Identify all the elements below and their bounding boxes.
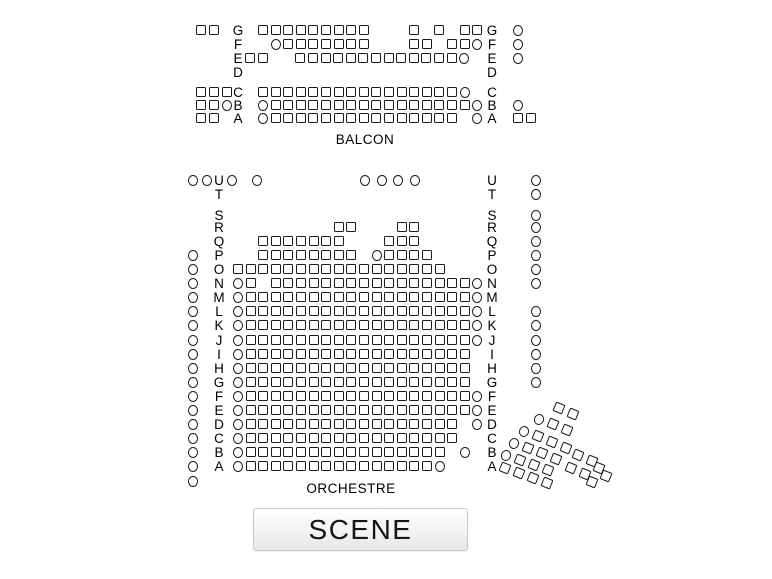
seat-orchestra-A-5[interactable]	[271, 461, 281, 471]
seat-balcony-G-11[interactable]	[359, 25, 369, 35]
seat-orchestra-A-3[interactable]	[246, 461, 256, 471]
seat-balcony-G-12[interactable]	[409, 25, 419, 35]
seat-side-block-24[interactable]	[564, 461, 577, 474]
seat-orchestra-B-13[interactable]	[372, 447, 382, 457]
seat-orchestra-O-9[interactable]	[321, 264, 331, 274]
seat-orchestra-P-2[interactable]	[258, 250, 268, 260]
seat-orchestra-B-1[interactable]	[188, 447, 198, 458]
seat-balcony-G-4[interactable]	[271, 25, 281, 35]
seat-orchestra-N-20[interactable]	[472, 278, 482, 289]
seat-orchestra-K-12[interactable]	[359, 320, 369, 330]
seat-balcony-C-15[interactable]	[397, 87, 407, 97]
seat-balcony-E-1[interactable]	[245, 53, 255, 63]
seat-balcony-F-9[interactable]	[409, 39, 419, 49]
seat-orchestra-M-3[interactable]	[246, 292, 256, 302]
seat-balcony-E-6[interactable]	[333, 53, 343, 63]
seat-orchestra-B-16[interactable]	[409, 447, 419, 457]
seat-balcony-E-13[interactable]	[421, 53, 431, 63]
seat-orchestra-E-16[interactable]	[409, 405, 419, 415]
seat-orchestra-U-6[interactable]	[377, 175, 387, 186]
seat-orchestra-Q-11[interactable]	[531, 236, 541, 247]
seat-orchestra-I-10[interactable]	[334, 349, 344, 359]
seat-orchestra-N-18[interactable]	[447, 278, 457, 288]
seat-orchestra-F-6[interactable]	[283, 391, 293, 401]
seat-orchestra-N-5[interactable]	[283, 278, 293, 288]
seat-orchestra-O-4[interactable]	[258, 264, 268, 274]
seat-balcony-B-13[interactable]	[371, 100, 381, 110]
seat-orchestra-R-1[interactable]	[334, 222, 344, 232]
seat-orchestra-L-9[interactable]	[321, 306, 331, 316]
seat-orchestra-E-14[interactable]	[384, 405, 394, 415]
seat-orchestra-C-13[interactable]	[372, 433, 382, 443]
seat-balcony-A-12[interactable]	[371, 113, 381, 123]
seat-orchestra-O-13[interactable]	[372, 264, 382, 274]
seat-balcony-B-16[interactable]	[409, 100, 419, 110]
seat-orchestra-Q-1[interactable]	[258, 236, 268, 246]
seat-orchestra-I-9[interactable]	[321, 349, 331, 359]
seat-orchestra-E-11[interactable]	[346, 405, 356, 415]
seat-orchestra-C-3[interactable]	[246, 433, 256, 443]
seat-orchestra-H-11[interactable]	[346, 363, 356, 373]
seat-orchestra-B-7[interactable]	[296, 447, 306, 457]
seat-orchestra-L-4[interactable]	[258, 306, 268, 316]
seat-orchestra-M-4[interactable]	[258, 292, 268, 302]
seat-orchestra-B-2[interactable]	[233, 447, 243, 458]
seat-balcony-F-4[interactable]	[308, 39, 318, 49]
seat-orchestra-H-7[interactable]	[296, 363, 306, 373]
seat-side-block-1[interactable]	[552, 401, 565, 414]
seat-orchestra-E-18[interactable]	[435, 405, 445, 415]
seat-orchestra-O-19[interactable]	[531, 264, 541, 275]
seat-orchestra-C-9[interactable]	[321, 433, 331, 443]
seat-orchestra-Q-8[interactable]	[384, 236, 394, 246]
seat-orchestra-D-9[interactable]	[321, 419, 331, 429]
seat-orchestra-P-12[interactable]	[397, 250, 407, 260]
seat-orchestra-M-1[interactable]	[188, 292, 198, 303]
seat-orchestra-M-20[interactable]	[460, 292, 470, 302]
seat-orchestra-A-9[interactable]	[321, 461, 331, 471]
seat-orchestra-D-8[interactable]	[309, 419, 319, 429]
seat-balcony-B-4[interactable]	[258, 100, 268, 111]
seat-orchestra-P-6[interactable]	[309, 250, 319, 260]
seat-orchestra-H-14[interactable]	[384, 363, 394, 373]
seat-orchestra-H-21[interactable]	[531, 363, 541, 374]
seat-orchestra-N-11[interactable]	[359, 278, 369, 288]
seat-orchestra-I-8[interactable]	[309, 349, 319, 359]
seat-orchestra-Q-3[interactable]	[283, 236, 293, 246]
seat-orchestra-O-5[interactable]	[271, 264, 281, 274]
seat-orchestra-H-15[interactable]	[397, 363, 407, 373]
seat-orchestra-N-15[interactable]	[409, 278, 419, 288]
seat-orchestra-P-13[interactable]	[409, 250, 419, 260]
seat-orchestra-E-2[interactable]	[233, 405, 243, 416]
seat-orchestra-P-15[interactable]	[531, 250, 541, 261]
seat-orchestra-E-9[interactable]	[321, 405, 331, 415]
seat-orchestra-G-9[interactable]	[321, 377, 331, 387]
seat-balcony-F-5[interactable]	[321, 39, 331, 49]
seat-balcony-F-8[interactable]	[359, 39, 369, 49]
seat-balcony-G-5[interactable]	[283, 25, 293, 35]
seat-side-block-20[interactable]	[526, 471, 539, 484]
seat-orchestra-H-13[interactable]	[372, 363, 382, 373]
seat-orchestra-I-21[interactable]	[531, 349, 541, 360]
seat-balcony-G-10[interactable]	[346, 25, 356, 35]
seat-orchestra-B-5[interactable]	[271, 447, 281, 457]
seat-orchestra-I-5[interactable]	[271, 349, 281, 359]
seat-balcony-C-18[interactable]	[434, 87, 444, 97]
seat-orchestra-J-10[interactable]	[334, 335, 344, 345]
seat-orchestra-K-18[interactable]	[435, 320, 445, 330]
seat-orchestra-F-4[interactable]	[258, 391, 268, 401]
seat-orchestra-M-11[interactable]	[346, 292, 356, 302]
seat-balcony-E-12[interactable]	[409, 53, 419, 63]
seat-orchestra-J-9[interactable]	[321, 335, 331, 345]
seat-balcony-C-12[interactable]	[359, 87, 369, 97]
seat-side-block-28[interactable]	[599, 469, 612, 482]
seat-orchestra-F-3[interactable]	[246, 391, 256, 401]
seat-side-block-15[interactable]	[513, 453, 526, 466]
seat-orchestra-K-13[interactable]	[372, 320, 382, 330]
seat-orchestra-M-19[interactable]	[447, 292, 457, 302]
seat-orchestra-C-12[interactable]	[359, 433, 369, 443]
seat-balcony-C-14[interactable]	[384, 87, 394, 97]
seat-orchestra-L-22[interactable]	[531, 306, 541, 317]
seat-orchestra-P-10[interactable]	[372, 250, 382, 261]
seat-orchestra-F-10[interactable]	[334, 391, 344, 401]
seat-orchestra-A-6[interactable]	[283, 461, 293, 471]
seat-balcony-B-5[interactable]	[271, 100, 281, 110]
seat-orchestra-K-21[interactable]	[472, 320, 482, 331]
seat-orchestra-U-5[interactable]	[360, 175, 370, 186]
seat-orchestra-M-2[interactable]	[233, 292, 243, 303]
seat-orchestra-G-4[interactable]	[258, 377, 268, 387]
seat-orchestra-N-3[interactable]	[246, 278, 256, 288]
seat-orchestra-H-10[interactable]	[334, 363, 344, 373]
seat-side-block-3[interactable]	[532, 413, 545, 427]
seat-side-block-17[interactable]	[541, 463, 554, 476]
seat-orchestra-T-1[interactable]	[531, 189, 541, 200]
seat-orchestra-O-18[interactable]	[435, 264, 445, 274]
seat-balcony-A-4[interactable]	[271, 113, 281, 123]
seat-orchestra-H-5[interactable]	[271, 363, 281, 373]
seat-orchestra-G-11[interactable]	[346, 377, 356, 387]
seat-orchestra-N-9[interactable]	[334, 278, 344, 288]
seat-orchestra-J-1[interactable]	[188, 335, 198, 346]
seat-orchestra-K-20[interactable]	[460, 320, 470, 330]
seat-side-block-6[interactable]	[517, 425, 530, 439]
seat-orchestra-J-17[interactable]	[422, 335, 432, 345]
seat-orchestra-M-10[interactable]	[334, 292, 344, 302]
seat-orchestra-A-17[interactable]	[422, 461, 432, 471]
seat-orchestra-F-18[interactable]	[435, 391, 445, 401]
seat-orchestra-R-4[interactable]	[409, 222, 419, 232]
seat-orchestra-G-7[interactable]	[296, 377, 306, 387]
seat-orchestra-B-3[interactable]	[246, 447, 256, 457]
seat-balcony-C-4[interactable]	[258, 87, 268, 97]
seat-orchestra-L-21[interactable]	[472, 306, 482, 317]
seat-orchestra-B-15[interactable]	[397, 447, 407, 457]
seat-orchestra-G-6[interactable]	[283, 377, 293, 387]
seat-side-block-2[interactable]	[566, 407, 579, 420]
seat-orchestra-J-18[interactable]	[435, 335, 445, 345]
seat-orchestra-A-14[interactable]	[384, 461, 394, 471]
seat-orchestra-C-4[interactable]	[258, 433, 268, 443]
seat-orchestra-L-15[interactable]	[397, 306, 407, 316]
seat-orchestra-I-19[interactable]	[447, 349, 457, 359]
seat-orchestra-M-13[interactable]	[372, 292, 382, 302]
seat-balcony-A-5[interactable]	[283, 113, 293, 123]
seat-balcony-E-16[interactable]	[459, 53, 469, 64]
seat-orchestra-K-16[interactable]	[409, 320, 419, 330]
seat-orchestra-A-16[interactable]	[409, 461, 419, 471]
seat-orchestra-F-15[interactable]	[397, 391, 407, 401]
seat-orchestra-F-20[interactable]	[460, 391, 470, 401]
seat-orchestra-A-18[interactable]	[435, 461, 445, 472]
seat-orchestra-L-12[interactable]	[359, 306, 369, 316]
seat-orchestra-K-6[interactable]	[283, 320, 293, 330]
seat-orchestra-I-11[interactable]	[346, 349, 356, 359]
seat-side-block-16[interactable]	[527, 458, 540, 471]
seat-orchestra-K-4[interactable]	[258, 320, 268, 330]
seat-orchestra-M-14[interactable]	[384, 292, 394, 302]
seat-orchestra-R-5[interactable]	[531, 222, 541, 233]
seat-orchestra-F-21[interactable]	[472, 391, 482, 402]
seat-orchestra-L-20[interactable]	[460, 306, 470, 316]
seat-orchestra-E-4[interactable]	[258, 405, 268, 415]
seat-orchestra-D-5[interactable]	[271, 419, 281, 429]
seat-orchestra-I-6[interactable]	[283, 349, 293, 359]
seat-orchestra-G-20[interactable]	[460, 377, 470, 387]
seat-orchestra-L-6[interactable]	[283, 306, 293, 316]
seat-balcony-A-2[interactable]	[209, 113, 219, 123]
seat-orchestra-B-4[interactable]	[258, 447, 268, 457]
seat-orchestra-L-8[interactable]	[309, 306, 319, 316]
seat-balcony-C-1[interactable]	[196, 87, 206, 97]
seat-orchestra-G-5[interactable]	[271, 377, 281, 387]
seat-orchestra-H-19[interactable]	[447, 363, 457, 373]
seat-orchestra-J-4[interactable]	[258, 335, 268, 345]
seat-balcony-A-21[interactable]	[526, 113, 536, 123]
seat-orchestra-B-17[interactable]	[422, 447, 432, 457]
seat-orchestra-D-3[interactable]	[246, 419, 256, 429]
seat-orchestra-P-14[interactable]	[422, 250, 432, 260]
seat-balcony-B-18[interactable]	[434, 100, 444, 110]
seat-side-block-8[interactable]	[545, 435, 558, 448]
seat-orchestra-D-7[interactable]	[296, 419, 306, 429]
seat-orchestra-N-19[interactable]	[460, 278, 470, 288]
seat-orchestra-K-14[interactable]	[384, 320, 394, 330]
seat-orchestra-F-11[interactable]	[346, 391, 356, 401]
seat-orchestra-K-7[interactable]	[296, 320, 306, 330]
seat-balcony-E-3[interactable]	[295, 53, 305, 63]
seat-balcony-B-12[interactable]	[359, 100, 369, 110]
seat-orchestra-L-17[interactable]	[422, 306, 432, 316]
seat-orchestra-L-11[interactable]	[346, 306, 356, 316]
seat-orchestra-N-8[interactable]	[321, 278, 331, 288]
seat-orchestra-L-2[interactable]	[233, 306, 243, 317]
seat-orchestra-C-6[interactable]	[283, 433, 293, 443]
seat-orchestra-G-18[interactable]	[435, 377, 445, 387]
seat-orchestra-C-15[interactable]	[397, 433, 407, 443]
seat-orchestra-F-8[interactable]	[309, 391, 319, 401]
seat-balcony-G-2[interactable]	[209, 25, 219, 35]
seat-orchestra-G-21[interactable]	[531, 377, 541, 388]
seat-orchestra-A-7[interactable]	[296, 461, 306, 471]
seat-orchestra-C-18[interactable]	[435, 433, 445, 443]
seat-balcony-B-8[interactable]	[308, 100, 318, 110]
seat-balcony-C-20[interactable]	[460, 87, 470, 98]
seat-balcony-F-10[interactable]	[422, 39, 432, 49]
seat-orchestra-H-16[interactable]	[409, 363, 419, 373]
seat-orchestra-E-17[interactable]	[422, 405, 432, 415]
seat-balcony-A-10[interactable]	[346, 113, 356, 123]
seat-orchestra-P-7[interactable]	[321, 250, 331, 260]
seat-balcony-E-8[interactable]	[358, 53, 368, 63]
seat-orchestra-H-9[interactable]	[321, 363, 331, 373]
seat-orchestra-B-11[interactable]	[346, 447, 356, 457]
seat-orchestra-D-4[interactable]	[258, 419, 268, 429]
seat-orchestra-A-12[interactable]	[359, 461, 369, 471]
seat-side-block-13[interactable]	[549, 452, 562, 465]
seat-orchestra-E-15[interactable]	[397, 405, 407, 415]
seat-orchestra-D-6[interactable]	[283, 419, 293, 429]
seat-orchestra-D-12[interactable]	[359, 419, 369, 429]
seat-orchestra-U-8[interactable]	[410, 175, 420, 186]
seat-orchestra-I-1[interactable]	[188, 349, 198, 360]
seat-orchestra-P-11[interactable]	[384, 250, 394, 260]
seat-orchestra-D-2[interactable]	[233, 419, 243, 430]
seat-orchestra-J-14[interactable]	[384, 335, 394, 345]
seat-balcony-A-19[interactable]	[472, 113, 482, 124]
seat-orchestra-C-8[interactable]	[309, 433, 319, 443]
seat-orchestra-G-1[interactable]	[188, 377, 198, 388]
seat-orchestra-M-16[interactable]	[409, 292, 419, 302]
seat-orchestra-E-6[interactable]	[283, 405, 293, 415]
seat-orchestra-L-5[interactable]	[271, 306, 281, 316]
seat-orchestra-I-13[interactable]	[372, 349, 382, 359]
seat-balcony-A-3[interactable]	[258, 113, 268, 124]
seat-orchestra-L-13[interactable]	[372, 306, 382, 316]
seat-orchestra-E-7[interactable]	[296, 405, 306, 415]
seat-balcony-C-16[interactable]	[409, 87, 419, 97]
seat-side-block-9[interactable]	[559, 441, 572, 454]
seat-orchestra-Q-5[interactable]	[309, 236, 319, 246]
seat-orchestra-U-3[interactable]	[227, 175, 237, 186]
seat-orchestra-N-2[interactable]	[233, 278, 243, 289]
seat-orchestra-H-8[interactable]	[309, 363, 319, 373]
seat-balcony-E-11[interactable]	[396, 53, 406, 63]
seat-side-block-22[interactable]	[571, 448, 584, 461]
seat-orchestra-F-5[interactable]	[271, 391, 281, 401]
seat-balcony-G-13[interactable]	[434, 25, 444, 35]
seat-orchestra-D-20[interactable]	[472, 419, 482, 430]
seat-orchestra-N-1[interactable]	[188, 278, 198, 289]
seat-orchestra-M-9[interactable]	[321, 292, 331, 302]
seat-balcony-B-7[interactable]	[296, 100, 306, 110]
seat-balcony-F-12[interactable]	[460, 39, 470, 49]
seat-balcony-G-6[interactable]	[296, 25, 306, 35]
seat-orchestra-M-18[interactable]	[435, 292, 445, 302]
seat-side-block-10[interactable]	[507, 437, 520, 451]
seat-orchestra-K-11[interactable]	[346, 320, 356, 330]
seat-orchestra-C-19[interactable]	[447, 433, 457, 443]
seat-side-block-5[interactable]	[560, 423, 573, 436]
seat-orchestra-F-17[interactable]	[422, 391, 432, 401]
seat-orchestra-H-6[interactable]	[283, 363, 293, 373]
seat-orchestra-C-1[interactable]	[188, 433, 198, 444]
seat-orchestra-I-4[interactable]	[258, 349, 268, 359]
seat-orchestra-F-13[interactable]	[372, 391, 382, 401]
seat-orchestra-P-5[interactable]	[296, 250, 306, 260]
seat-orchestra-G-17[interactable]	[422, 377, 432, 387]
seat-balcony-F-2[interactable]	[283, 39, 293, 49]
seat-orchestra-I-7[interactable]	[296, 349, 306, 359]
seat-orchestra-A-13[interactable]	[372, 461, 382, 471]
seat-orchestra-J-15[interactable]	[397, 335, 407, 345]
seat-side-block-21[interactable]	[540, 476, 553, 489]
seat-side-block-4[interactable]	[546, 417, 559, 430]
seat-orchestra-M-12[interactable]	[359, 292, 369, 302]
seat-orchestra-F-7[interactable]	[296, 391, 306, 401]
seat-orchestra-J-19[interactable]	[447, 335, 457, 345]
seat-orchestra-J-22[interactable]	[531, 335, 541, 346]
seat-side-block-18[interactable]	[498, 461, 511, 474]
seat-balcony-C-9[interactable]	[321, 87, 331, 97]
seat-orchestra-J-7[interactable]	[296, 335, 306, 345]
seat-orchestra-B-19[interactable]	[460, 447, 470, 458]
seat-orchestra-N-14[interactable]	[397, 278, 407, 288]
seat-orchestra-E-21[interactable]	[472, 405, 482, 416]
seat-balcony-F-13[interactable]	[472, 39, 482, 50]
seat-balcony-B-9[interactable]	[321, 100, 331, 110]
seat-orchestra-A-1[interactable]	[188, 461, 198, 472]
seat-orchestra-F-9[interactable]	[321, 391, 331, 401]
seat-orchestra-G-10[interactable]	[334, 377, 344, 387]
seat-balcony-A-6[interactable]	[296, 113, 306, 123]
seat-balcony-G-15[interactable]	[472, 25, 482, 35]
seat-orchestra-E-3[interactable]	[246, 405, 256, 415]
seat-orchestra-D-1[interactable]	[188, 419, 198, 430]
seat-orchestra-B-14[interactable]	[384, 447, 394, 457]
seat-balcony-C-13[interactable]	[371, 87, 381, 97]
seat-orchestra-A-8[interactable]	[309, 461, 319, 471]
seat-orchestra-D-10[interactable]	[334, 419, 344, 429]
seat-orchestra-K-9[interactable]	[321, 320, 331, 330]
seat-orchestra-N-13[interactable]	[384, 278, 394, 288]
seat-orchestra-D-18[interactable]	[435, 419, 445, 429]
seat-orchestra-G-16[interactable]	[409, 377, 419, 387]
seat-orchestra-L-7[interactable]	[296, 306, 306, 316]
seat-orchestra-I-16[interactable]	[409, 349, 419, 359]
seat-orchestra-F-12[interactable]	[359, 391, 369, 401]
seat-orchestra-Q-9[interactable]	[397, 236, 407, 246]
seat-balcony-A-7[interactable]	[308, 113, 318, 123]
seat-balcony-F-14[interactable]	[513, 39, 523, 50]
seat-orchestra-B-6[interactable]	[283, 447, 293, 457]
seat-balcony-C-8[interactable]	[308, 87, 318, 97]
seat-balcony-A-17[interactable]	[434, 113, 444, 123]
seat-orchestra-L-19[interactable]	[447, 306, 457, 316]
seat-orchestra-N-16[interactable]	[422, 278, 432, 288]
seat-orchestra-N-17[interactable]	[435, 278, 445, 288]
seat-orchestra-R-2[interactable]	[346, 222, 356, 232]
seat-balcony-A-14[interactable]	[397, 113, 407, 123]
seat-balcony-A-11[interactable]	[359, 113, 369, 123]
seat-orchestra-R-3[interactable]	[397, 222, 407, 232]
seat-balcony-C-17[interactable]	[422, 87, 432, 97]
seat-side-block-11[interactable]	[521, 441, 534, 454]
seat-orchestra-C-11[interactable]	[346, 433, 356, 443]
